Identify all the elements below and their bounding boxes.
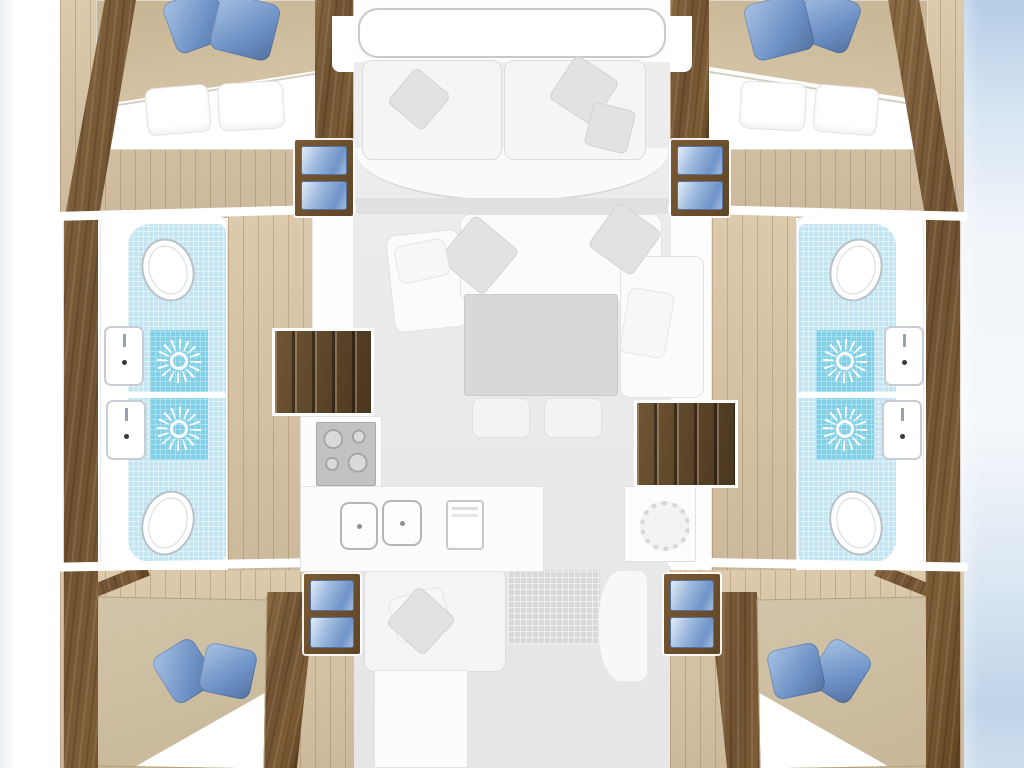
galley-sink bbox=[340, 502, 378, 550]
galley-counter bbox=[300, 486, 544, 572]
aft-seat-curve bbox=[598, 570, 648, 682]
storage-steps-fwd-stbd bbox=[671, 140, 729, 216]
toilet-fwd-port bbox=[133, 232, 202, 309]
shower-aft-port bbox=[150, 398, 208, 460]
aft-cockpit-table bbox=[374, 670, 468, 768]
storage-steps-aft-stbd bbox=[664, 574, 720, 654]
galley-stove bbox=[316, 422, 376, 486]
pillow-blue bbox=[197, 641, 258, 701]
salon-table bbox=[464, 294, 618, 396]
washbasin-fwd-port bbox=[104, 326, 144, 386]
catamaran-floorplan bbox=[0, 0, 1024, 768]
companionway-steps-stbd bbox=[634, 400, 738, 488]
pillow-white bbox=[144, 83, 212, 136]
pillow-blue bbox=[208, 0, 282, 63]
pillow-blue bbox=[742, 0, 816, 63]
washbasin-aft-port bbox=[106, 400, 146, 460]
pillow-white bbox=[739, 80, 807, 131]
shower-fwd-stbd bbox=[816, 330, 874, 392]
storage-steps-aft-port bbox=[304, 574, 360, 654]
pillow-white bbox=[812, 83, 880, 136]
galley-fridge bbox=[446, 500, 484, 550]
aft-deck-mat bbox=[508, 570, 600, 644]
shower-aft-stbd bbox=[816, 398, 874, 460]
fixture-layer bbox=[0, 0, 1024, 768]
pillow-white bbox=[217, 80, 285, 131]
salon-stool bbox=[472, 398, 530, 438]
shower-fwd-port bbox=[150, 330, 208, 392]
toilet-fwd-stbd bbox=[821, 232, 890, 309]
washbasin-fwd-stbd bbox=[884, 326, 924, 386]
companionway-steps-port bbox=[272, 328, 374, 416]
salon-stool bbox=[544, 398, 602, 438]
toilet-aft-port bbox=[133, 484, 203, 563]
washbasin-aft-stbd bbox=[882, 400, 922, 460]
galley-sink bbox=[382, 500, 422, 546]
pillow-blue bbox=[765, 641, 826, 701]
storage-steps-fwd-port bbox=[295, 140, 353, 216]
washing-machine bbox=[624, 486, 696, 562]
toilet-aft-stbd bbox=[821, 484, 891, 563]
